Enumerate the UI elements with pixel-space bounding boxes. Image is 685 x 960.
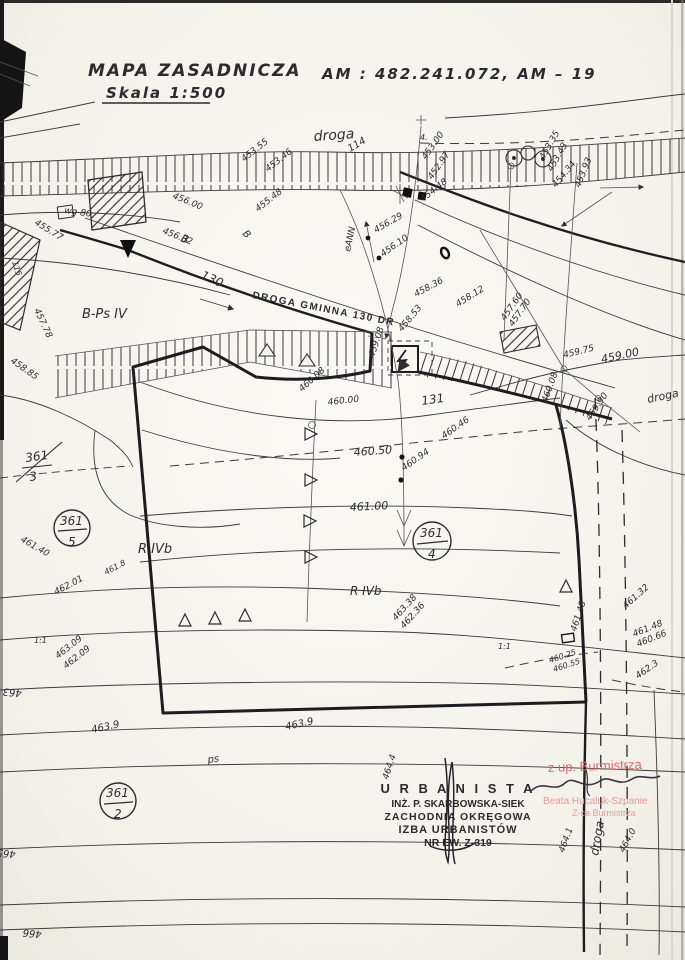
hatched-building: [88, 172, 146, 230]
map-title: MAPA ZASADNICZA: [88, 61, 302, 81]
approval-line-3: Z-ca Burmistrza: [572, 808, 636, 818]
stamp-line-2: INŻ. P. SKARBOWSKA-SIEK: [391, 797, 525, 810]
map-label: 5: [68, 535, 76, 549]
map-label: ps: [206, 753, 220, 766]
scanned-map-page: MAPA ZASADNICZA Skala 1:500 AM : 482.241…: [0, 0, 685, 960]
map-label: 361: [60, 514, 83, 528]
stamp-line-1: U R B A N I S T A: [381, 781, 536, 796]
stamp-line-3: ZACHODNIA OKRĘGOWA: [384, 811, 531, 823]
stamp-line-4: IZBA URBANISTÓW: [398, 823, 517, 836]
approval-line-2: Beata Hucaluk-Szpanie: [543, 796, 648, 807]
map-label: droga: [313, 126, 355, 145]
marker-rectangle: [562, 633, 575, 643]
map-label: 461.00: [349, 499, 388, 514]
map-label: 1:1: [498, 642, 511, 651]
map-label: 4.: [420, 133, 428, 142]
map-label: 463: [2, 685, 22, 698]
map-label: 460.50: [353, 443, 392, 459]
building-point-symbol: [402, 187, 413, 198]
sheet-reference: AM : 482.241.072, AM – 19: [321, 65, 597, 83]
map-label: 1:1: [34, 636, 47, 645]
map-canvas: MAPA ZASADNICZA Skala 1:500 AM : 482.241…: [0, 0, 685, 960]
map-label: 2: [114, 807, 122, 821]
map-label: 466: [22, 926, 42, 939]
map-label: 465: [0, 846, 16, 859]
map-label: 4: [428, 547, 436, 561]
map-label: R IVb: [350, 584, 382, 598]
map-label: R IVb: [138, 542, 172, 557]
map-label: 361: [106, 786, 129, 800]
map-label: 361: [420, 526, 443, 540]
map-scale: Skala 1:500: [106, 84, 227, 102]
map-label: B-Ps IV: [82, 307, 128, 322]
